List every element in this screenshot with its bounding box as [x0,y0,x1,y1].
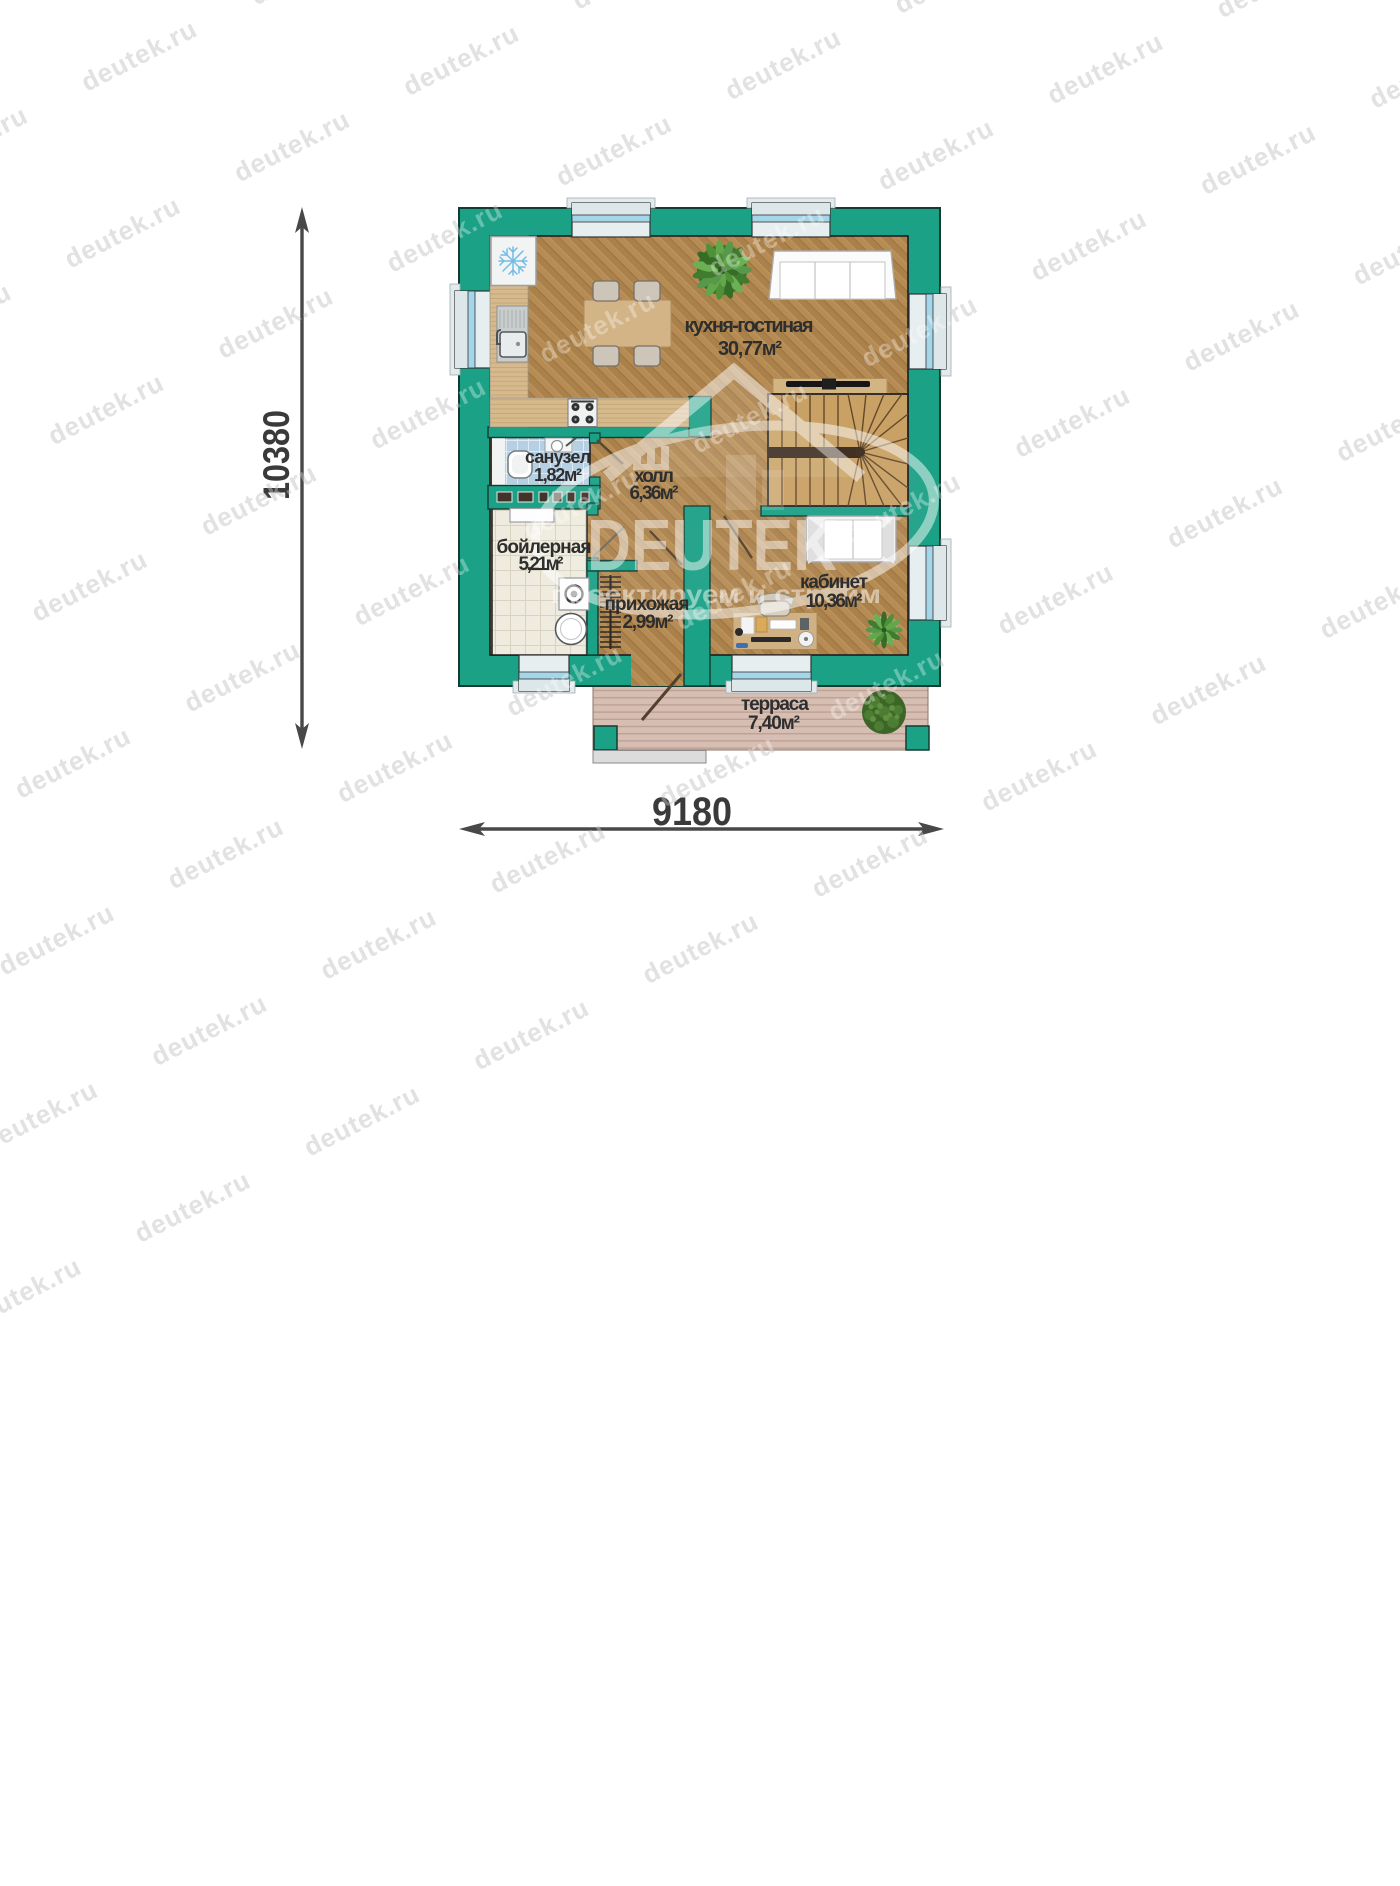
svg-text:кабинет: кабинет [800,572,868,593]
svg-text:5,21м²: 5,21м² [519,554,564,575]
svg-text:6,36м²: 6,36м² [630,483,679,504]
svg-text:кухня-гостиная: кухня-гостиная [685,315,814,337]
svg-text:30,77м²: 30,77м² [718,338,782,360]
svg-text:1,82м²: 1,82м² [534,465,582,485]
svg-text:10,36м²: 10,36м² [806,591,863,612]
svg-text:10380: 10380 [256,410,297,500]
svg-text:2,99м²: 2,99м² [623,612,674,633]
svg-text:терраса: терраса [741,694,809,715]
svg-text:санузел: санузел [525,447,591,467]
svg-text:7,40м²: 7,40м² [748,713,800,734]
svg-text:9180: 9180 [652,790,732,834]
